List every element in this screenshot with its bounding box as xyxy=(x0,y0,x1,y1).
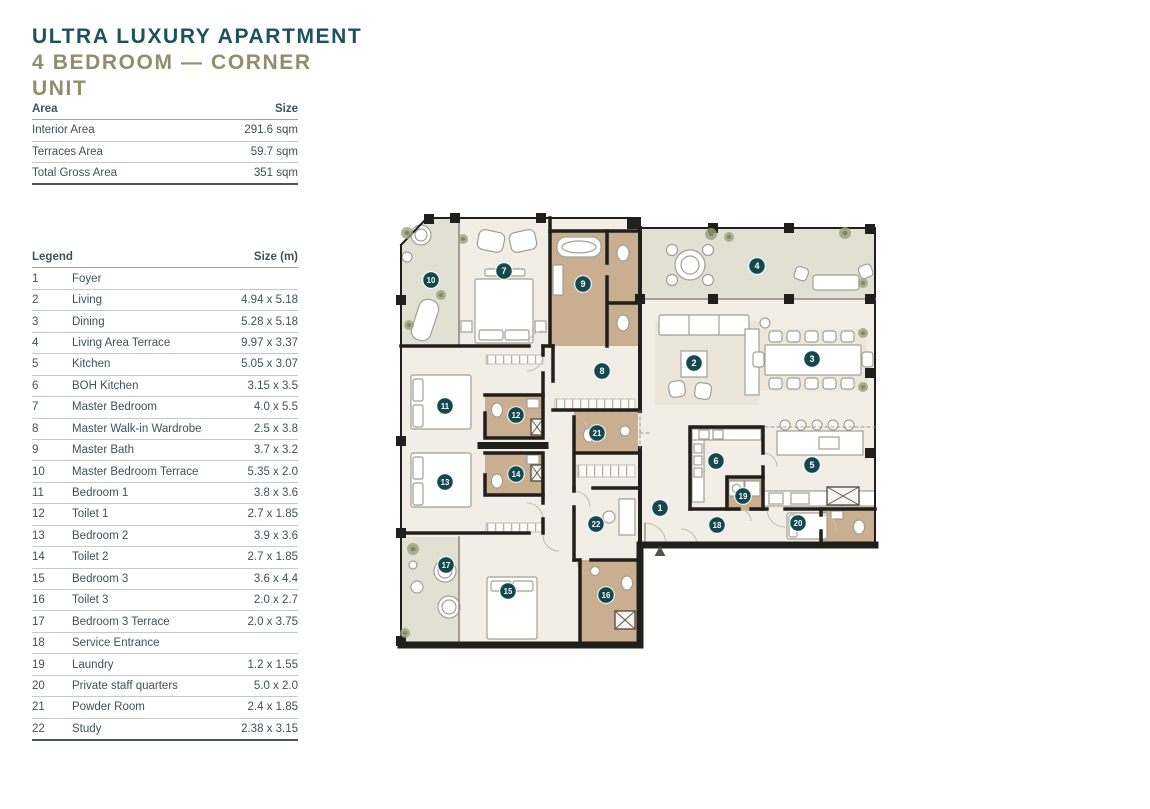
legend-row-number: 11 xyxy=(32,487,72,499)
legend-row-size: 3.6 x 4.4 xyxy=(254,573,298,585)
svg-text:18: 18 xyxy=(713,521,722,530)
legend-row-number: 12 xyxy=(32,508,72,520)
legend-row-number: 7 xyxy=(32,401,72,413)
legend-row-number: 16 xyxy=(32,594,72,606)
legend-row-name: Toilet 3 xyxy=(72,594,254,606)
area-table-header: Area Size xyxy=(32,99,298,120)
room-marker-master-bedroom-terrace: 10 xyxy=(423,272,440,289)
svg-text:21: 21 xyxy=(593,429,602,438)
legend-row-15: 15Bedroom 33.6 x 4.4 xyxy=(32,569,298,590)
room-marker-bedroom-1: 11 xyxy=(437,398,454,415)
legend-row-name: Toilet 1 xyxy=(72,508,247,520)
legend-row-size: 3.9 x 3.6 xyxy=(254,530,298,542)
legend-row-number: 21 xyxy=(32,701,72,713)
legend-row-number: 4 xyxy=(32,337,72,349)
legend-row-size: 2.5 x 3.8 xyxy=(254,423,298,435)
legend-row-size: 1.2 x 1.55 xyxy=(247,659,298,671)
area-table: Area Size Interior Area291.6 sqmTerraces… xyxy=(32,99,298,185)
legend-row-number: 13 xyxy=(32,530,72,542)
room-marker-boh-kitchen: 6 xyxy=(708,453,725,470)
legend-row-11: 11Bedroom 13.8 x 3.6 xyxy=(32,483,298,504)
legend-row-21: 21Powder Room2.4 x 1.85 xyxy=(32,697,298,718)
legend-row-13: 13Bedroom 23.9 x 3.6 xyxy=(32,526,298,547)
legend-row-number: 14 xyxy=(32,551,72,563)
legend-row-number: 3 xyxy=(32,316,72,328)
title-block: ULTRA LUXURY APARTMENT 4 BEDROOM — CORNE… xyxy=(32,24,372,102)
room-marker-bedroom-2: 13 xyxy=(437,474,454,491)
legend-row-size: 5.05 x 3.07 xyxy=(241,358,298,370)
svg-text:4: 4 xyxy=(754,261,759,271)
legend-row-number: 8 xyxy=(32,423,72,435)
legend-row-8: 8Master Walk-in Wardrobe2.5 x 3.8 xyxy=(32,419,298,440)
legend-table: Legend Size (m) 1Foyer2Living4.94 x 5.18… xyxy=(32,247,298,741)
legend-row-number: 9 xyxy=(32,444,72,456)
legend-row-size: 2.0 x 2.7 xyxy=(254,594,298,606)
svg-text:14: 14 xyxy=(512,470,521,479)
legend-row-name: Master Bedroom xyxy=(72,401,254,413)
room-marker-service-entrance: 18 xyxy=(709,517,726,534)
area-table-row: Terraces Area59.7 sqm xyxy=(32,142,298,163)
legend-row-name: Laundry xyxy=(72,659,247,671)
legend-row-22: 22Study2.38 x 3.15 xyxy=(32,719,298,741)
legend-row-number: 22 xyxy=(32,723,72,735)
room-marker-master-bedroom: 7 xyxy=(496,263,513,280)
svg-text:7: 7 xyxy=(501,266,506,276)
legend-row-10: 10Master Bedroom Terrace5.35 x 2.0 xyxy=(32,461,298,482)
room-marker-private-staff-quarters: 20 xyxy=(790,515,807,532)
room-marker-study: 22 xyxy=(588,516,605,533)
legend-row-size: 2.0 x 3.75 xyxy=(247,616,298,628)
legend-row-size: 4.94 x 5.18 xyxy=(241,294,298,306)
svg-text:10: 10 xyxy=(427,276,436,285)
svg-text:1: 1 xyxy=(657,503,662,513)
legend-row-name: Master Walk-in Wardrobe xyxy=(72,423,254,435)
legend-row-name: Living xyxy=(72,294,241,306)
room-marker-bedroom-3-terrace: 17 xyxy=(438,557,455,574)
area-table-row: Total Gross Area351 sqm xyxy=(32,163,298,185)
svg-text:2: 2 xyxy=(691,358,696,368)
legend-row-6: 6BOH Kitchen3.15 x 3.5 xyxy=(32,376,298,397)
floor-plan: 12345678910111213141516171819202122 xyxy=(393,203,885,655)
room-marker-living-area-terrace: 4 xyxy=(749,258,766,275)
legend-row-name: Powder Room xyxy=(72,701,247,713)
legend-row-name: Study xyxy=(72,723,241,735)
legend-row-name: BOH Kitchen xyxy=(72,380,247,392)
legend-row-name: Kitchen xyxy=(72,358,241,370)
legend-row-name: Toilet 2 xyxy=(72,551,247,563)
room-marker-bedroom-3: 15 xyxy=(500,583,517,600)
area-row-label: Interior Area xyxy=(32,124,95,136)
legend-row-size: 5.28 x 5.18 xyxy=(241,316,298,328)
legend-row-name: Bedroom 3 Terrace xyxy=(72,616,247,628)
room-marker-dining: 3 xyxy=(804,351,821,368)
room-marker-toilet-1: 12 xyxy=(508,407,525,424)
legend-row-number: 18 xyxy=(32,637,72,649)
area-row-size: 59.7 sqm xyxy=(251,146,298,158)
legend-row-number: 2 xyxy=(32,294,72,306)
legend-size-col-header: Size (m) xyxy=(254,251,298,263)
svg-text:16: 16 xyxy=(602,591,611,600)
svg-text:20: 20 xyxy=(794,519,803,528)
room-marker-living: 2 xyxy=(686,355,703,372)
legend-row-size: 4.0 x 5.5 xyxy=(254,401,298,413)
legend-row-number: 15 xyxy=(32,573,72,585)
area-row-size: 291.6 sqm xyxy=(244,124,298,136)
svg-text:3: 3 xyxy=(809,354,814,364)
room-marker-master-bath: 9 xyxy=(575,276,592,293)
legend-row-size: 3.8 x 3.6 xyxy=(254,487,298,499)
page-subtitle: 4 BEDROOM — CORNER UNIT xyxy=(32,50,372,102)
area-row-size: 351 sqm xyxy=(254,167,298,179)
legend-row-name: Bedroom 1 xyxy=(72,487,254,499)
staff-bath-floor xyxy=(821,507,875,545)
legend-row-16: 16Toilet 32.0 x 2.7 xyxy=(32,590,298,611)
legend-row-size: 2.7 x 1.85 xyxy=(247,551,298,563)
legend-row-name: Private staff quarters xyxy=(72,680,254,692)
legend-row-size: 9.97 x 3.37 xyxy=(241,337,298,349)
legend-row-5: 5Kitchen5.05 x 3.07 xyxy=(32,354,298,375)
svg-text:11: 11 xyxy=(441,402,450,411)
room-marker-laundry: 19 xyxy=(735,488,752,505)
legend-row-3: 3Dining5.28 x 5.18 xyxy=(32,311,298,332)
svg-text:9: 9 xyxy=(580,279,585,289)
legend-row-number: 17 xyxy=(32,616,72,628)
legend-row-name: Master Bedroom Terrace xyxy=(72,466,247,478)
legend-row-size: 2.38 x 3.15 xyxy=(241,723,298,735)
floor-plan-svg: 12345678910111213141516171819202122 xyxy=(393,203,885,655)
legend-row-size: 3.15 x 3.5 xyxy=(247,380,298,392)
legend-row-number: 20 xyxy=(32,680,72,692)
svg-text:17: 17 xyxy=(442,561,451,570)
legend-row-name: Bedroom 2 xyxy=(72,530,254,542)
legend-row-number: 1 xyxy=(32,273,72,285)
size-col-header: Size xyxy=(275,103,298,115)
svg-text:12: 12 xyxy=(512,411,521,420)
svg-text:13: 13 xyxy=(441,478,450,487)
legend-row-size: 2.7 x 1.85 xyxy=(247,508,298,520)
legend-row-name: Bedroom 3 xyxy=(72,573,254,585)
room-marker-powder-room: 21 xyxy=(589,425,606,442)
legend-row-size: 2.4 x 1.85 xyxy=(247,701,298,713)
legend-row-number: 19 xyxy=(32,659,72,671)
svg-text:8: 8 xyxy=(599,366,604,376)
room-marker-master-walkin-wardrobe: 8 xyxy=(594,363,611,380)
legend-row-size: 5.0 x 2.0 xyxy=(254,680,298,692)
legend-row-14: 14Toilet 22.7 x 1.85 xyxy=(32,547,298,568)
legend-row-name: Foyer xyxy=(72,273,298,285)
room-marker-foyer: 1 xyxy=(652,500,669,517)
legend-row-18: 18Service Entrance xyxy=(32,633,298,654)
area-row-label: Terraces Area xyxy=(32,146,103,158)
room-marker-kitchen: 5 xyxy=(804,457,821,474)
legend-row-size: 3.7 x 3.2 xyxy=(254,444,298,456)
legend-row-20: 20Private staff quarters5.0 x 2.0 xyxy=(32,676,298,697)
legend-row-9: 9Master Bath3.7 x 3.2 xyxy=(32,440,298,461)
area-table-row: Interior Area291.6 sqm xyxy=(32,120,298,141)
area-col-header: Area xyxy=(32,103,58,115)
room-marker-toilet-2: 14 xyxy=(508,466,525,483)
legend-row-number: 5 xyxy=(32,358,72,370)
legend-row-1: 1Foyer xyxy=(32,268,298,289)
legend-row-name: Master Bath xyxy=(72,444,254,456)
area-row-label: Total Gross Area xyxy=(32,167,117,179)
legend-row-name: Service Entrance xyxy=(72,637,298,649)
page-title: ULTRA LUXURY APARTMENT xyxy=(32,24,372,50)
svg-text:15: 15 xyxy=(504,587,513,596)
svg-text:19: 19 xyxy=(739,492,748,501)
svg-text:5: 5 xyxy=(809,460,814,470)
legend-row-number: 10 xyxy=(32,466,72,478)
svg-text:6: 6 xyxy=(713,456,718,466)
legend-row-12: 12Toilet 12.7 x 1.85 xyxy=(32,504,298,525)
legend-row-2: 2Living4.94 x 5.18 xyxy=(32,290,298,311)
legend-table-header: Legend Size (m) xyxy=(32,247,298,268)
svg-text:22: 22 xyxy=(592,520,601,529)
legend-row-size: 5.35 x 2.0 xyxy=(247,466,298,478)
legend-row-17: 17Bedroom 3 Terrace2.0 x 3.75 xyxy=(32,611,298,632)
legend-row-4: 4Living Area Terrace9.97 x 3.37 xyxy=(32,333,298,354)
legend-row-19: 19Laundry1.2 x 1.55 xyxy=(32,654,298,675)
legend-row-name: Living Area Terrace xyxy=(72,337,241,349)
legend-row-7: 7Master Bedroom4.0 x 5.5 xyxy=(32,397,298,418)
room-marker-toilet-3: 16 xyxy=(598,587,615,604)
legend-row-name: Dining xyxy=(72,316,241,328)
legend-row-number: 6 xyxy=(32,380,72,392)
legend-col-header: Legend xyxy=(32,251,73,263)
